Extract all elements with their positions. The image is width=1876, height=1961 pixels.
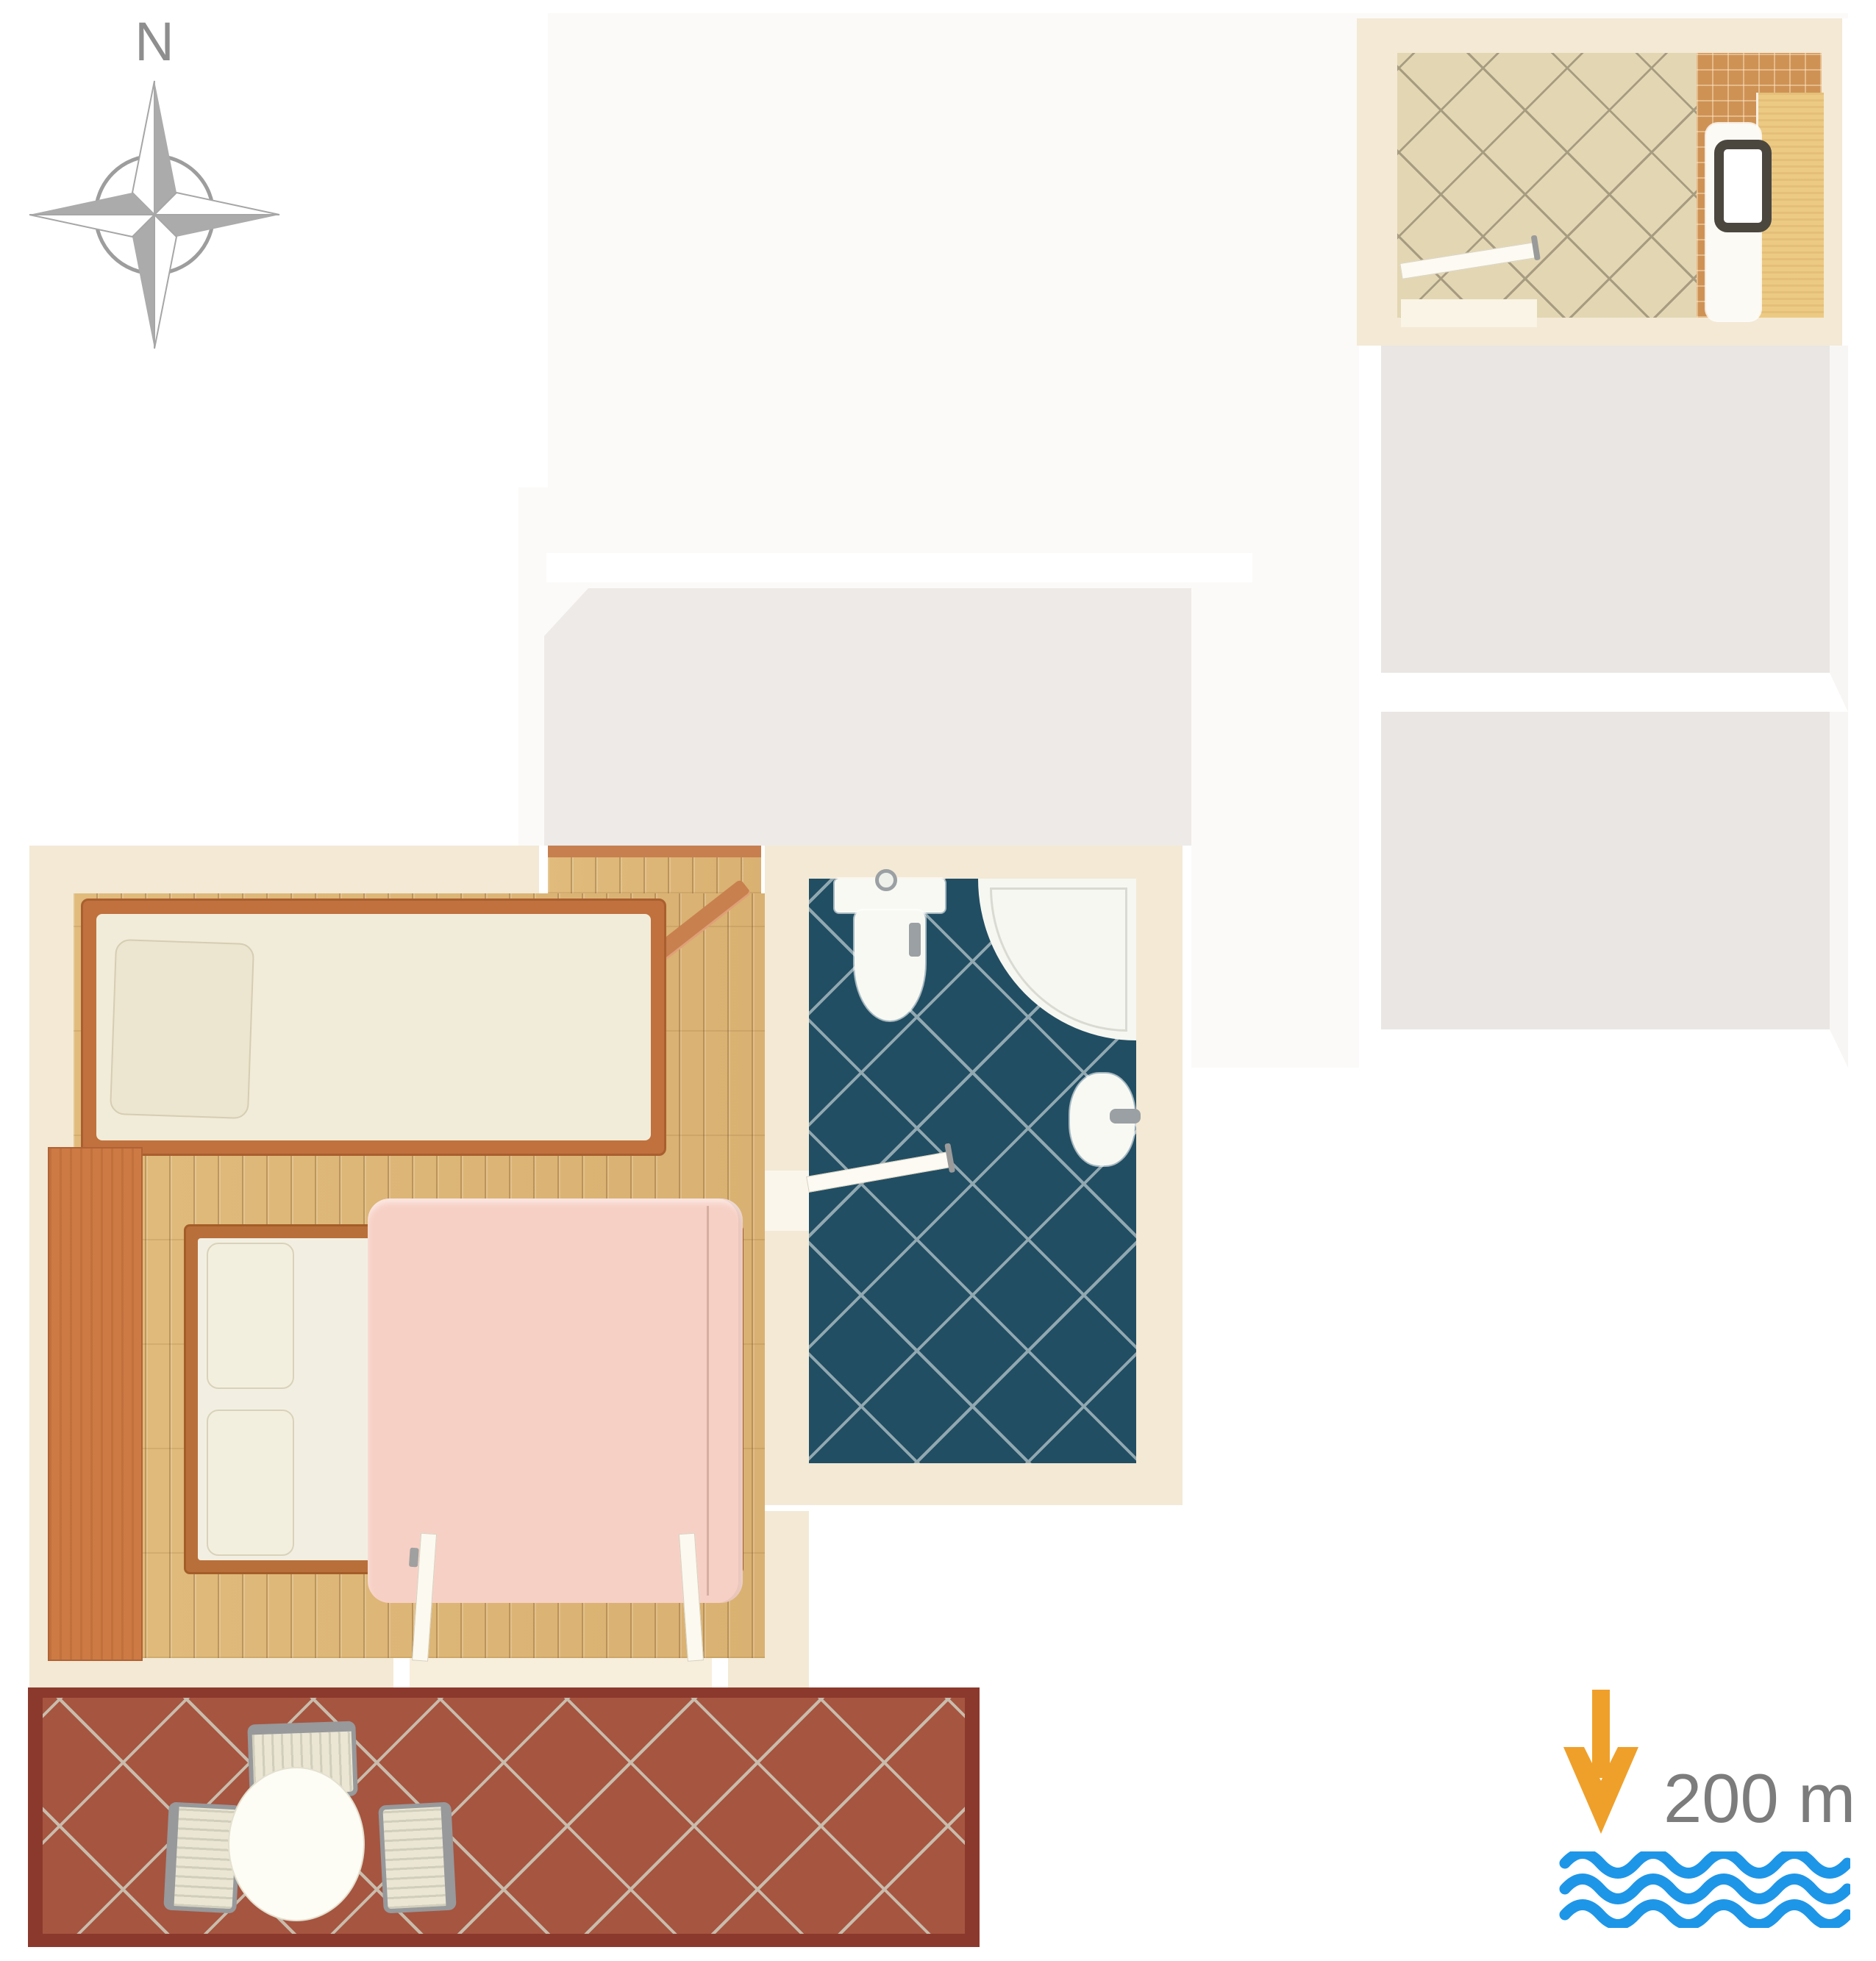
bathroom (765, 846, 1190, 1511)
wall-edge (1183, 846, 1190, 1511)
other-unit-wall (546, 553, 1252, 582)
distance-label: 200 m (1663, 1759, 1855, 1838)
door-handle-icon (409, 1548, 419, 1568)
wall-edge (765, 1505, 1190, 1511)
pillow (207, 1243, 294, 1389)
upper-bathroom (1357, 18, 1848, 346)
sea-waves-icon (1559, 1851, 1850, 1928)
bedroom-entry-lintel (548, 846, 761, 857)
single-bed (81, 899, 666, 1156)
wall-edge (1842, 18, 1848, 346)
terrace-door-opening (393, 1658, 728, 1691)
shower-drain-icon (875, 869, 897, 891)
toilet-seat (1714, 140, 1772, 232)
other-unit-gray-room-upper (1359, 346, 1848, 712)
arrow-down-to-sea-icon (1561, 1690, 1641, 1837)
terrace (28, 1687, 980, 1947)
door-jamb (712, 1658, 728, 1691)
terrace-chair-right (378, 1802, 457, 1914)
other-unit-wall (518, 13, 548, 487)
compass-rose-icon (21, 29, 288, 375)
bathroom-door-opening (765, 1171, 809, 1231)
pillow (110, 939, 254, 1119)
toilet-icon (1706, 124, 1761, 321)
pillow (207, 1410, 294, 1556)
other-unit-room-shaded (544, 588, 1191, 846)
terrace-round-table (229, 1768, 363, 1920)
bidet-faucet-icon (1110, 1109, 1141, 1124)
upper-bathroom-door-opening (1401, 299, 1537, 327)
other-unit-gray-room-lower (1359, 712, 1848, 1068)
floor-plan-canvas: N (0, 0, 1876, 1961)
door-jamb (539, 846, 548, 893)
wardrobe (48, 1147, 143, 1661)
bidet-icon (1070, 1074, 1135, 1165)
door-jamb (393, 1658, 410, 1691)
bedroom (29, 846, 809, 1691)
shower-faucet-icon (909, 923, 921, 957)
